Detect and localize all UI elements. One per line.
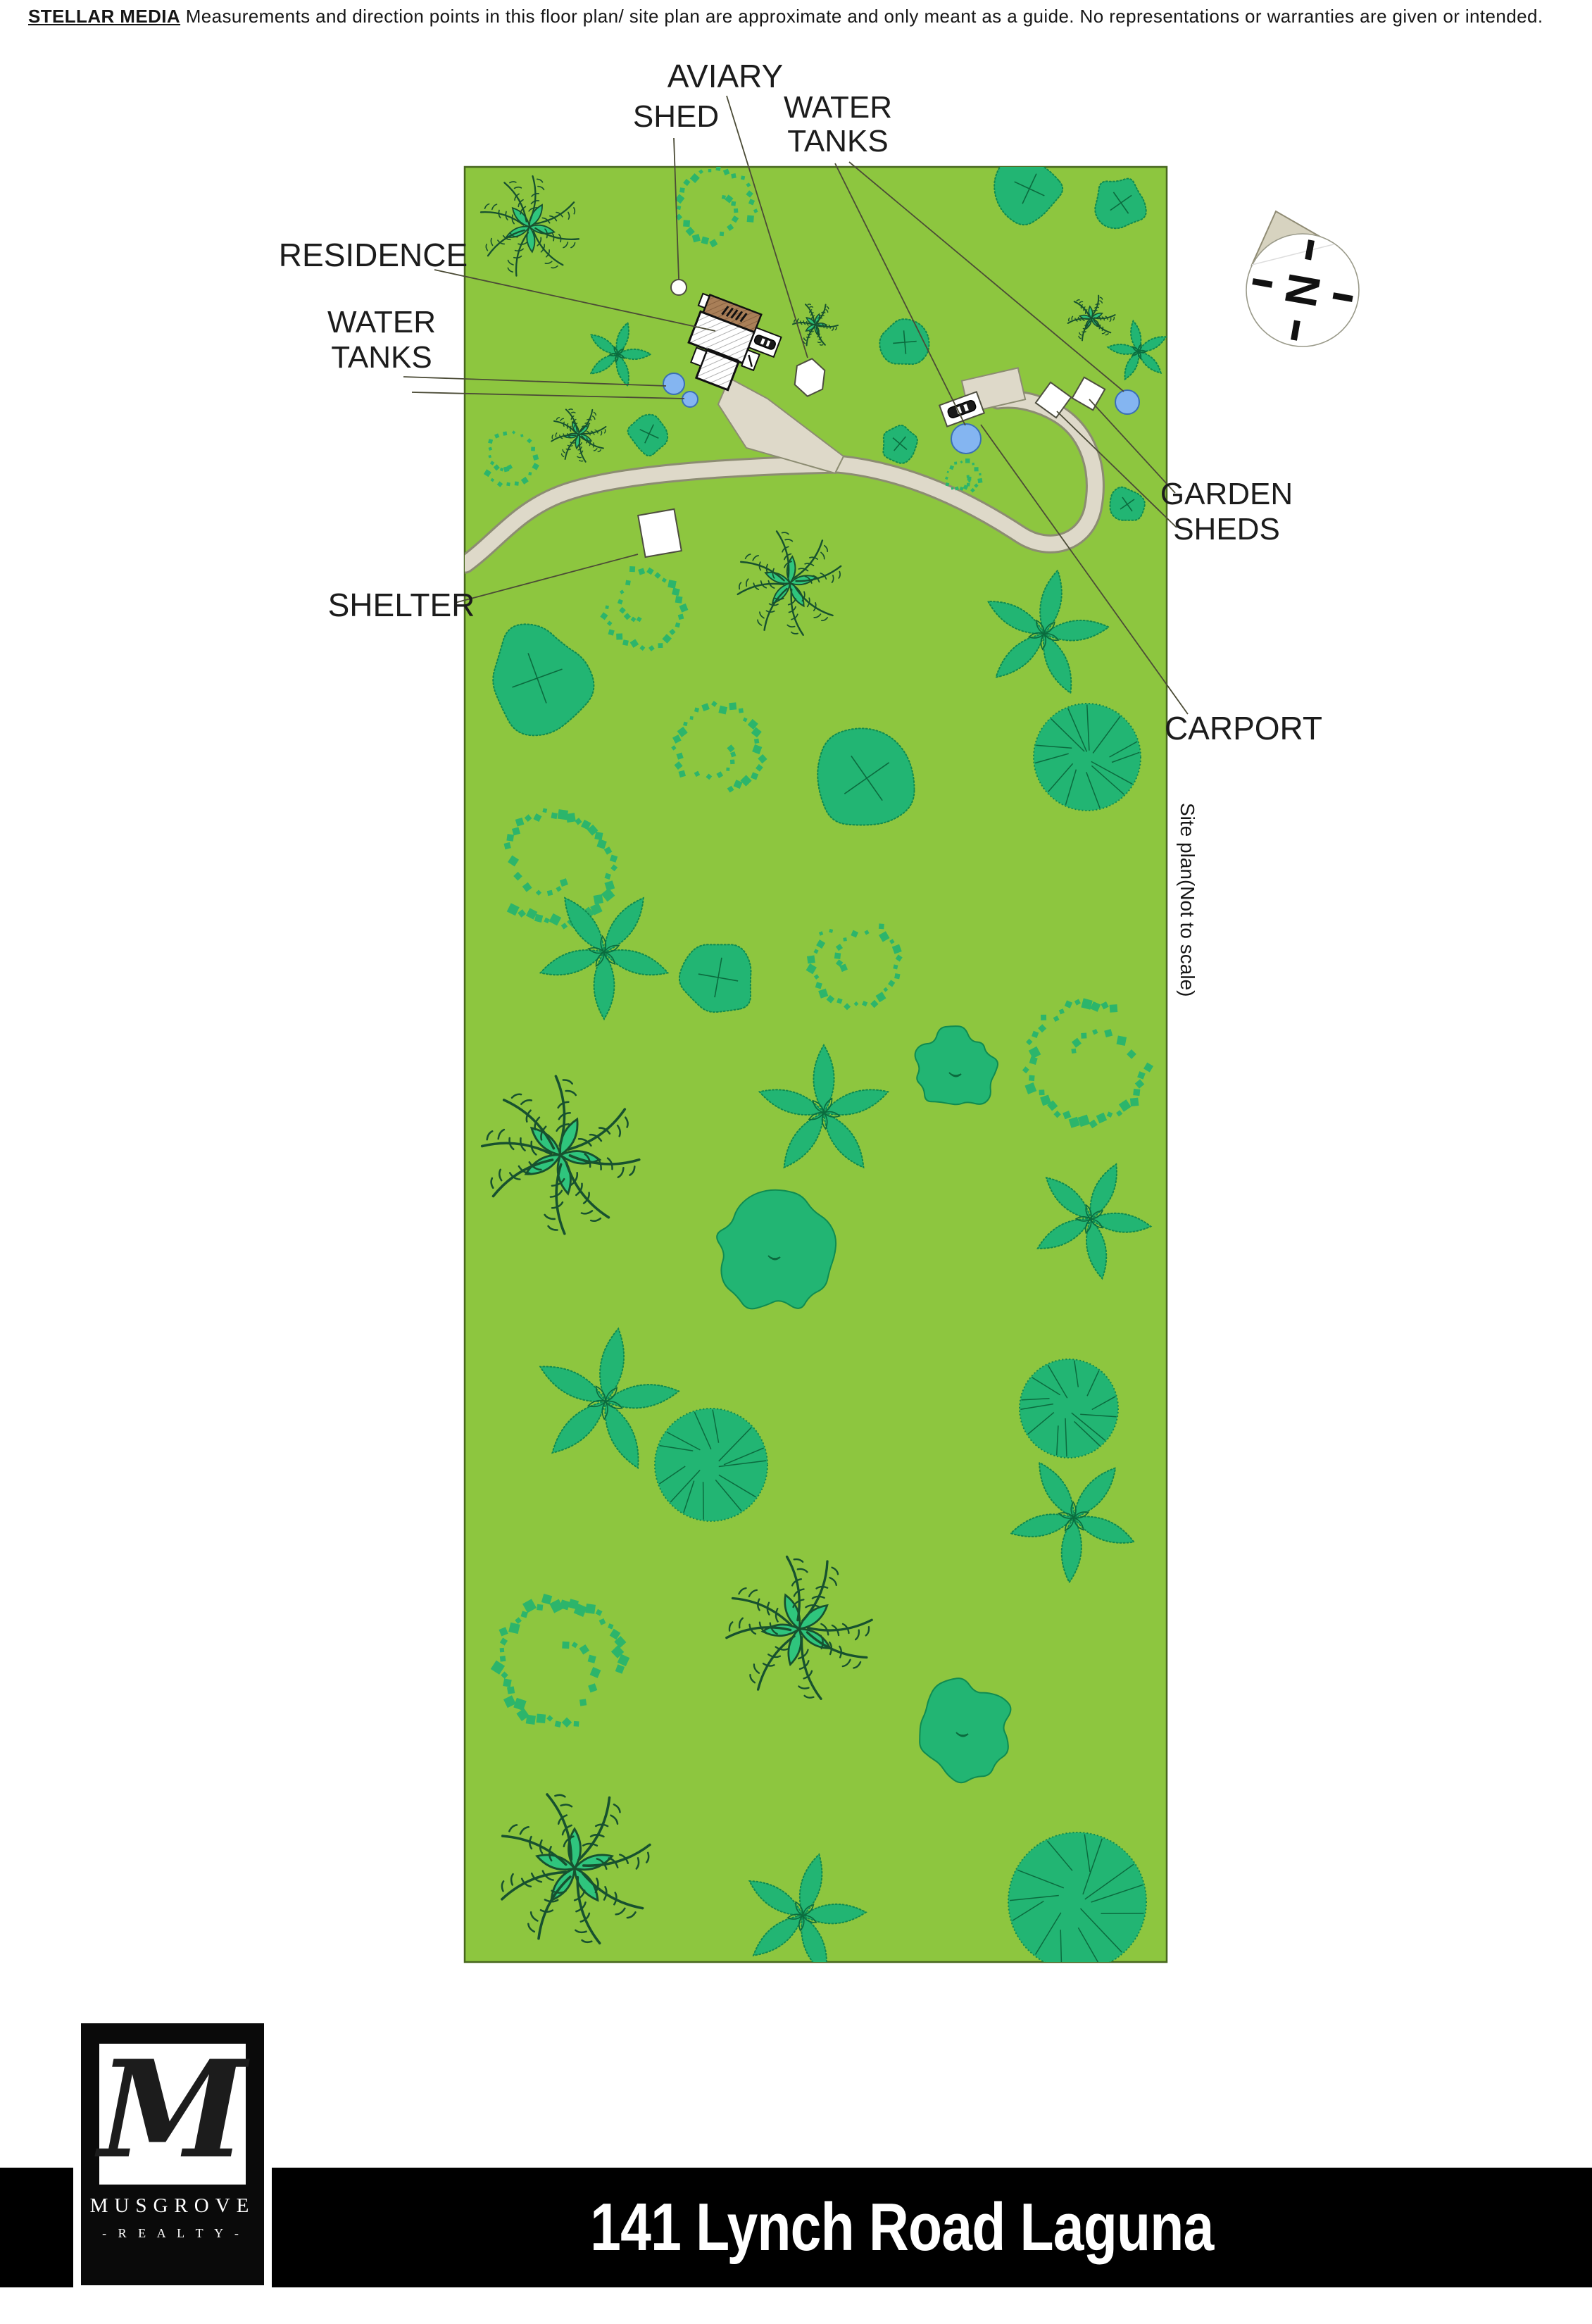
water-tank	[682, 392, 698, 407]
property-address-title: 141 Lynch Road Laguna	[590, 2189, 1213, 2266]
site-plan-svg: RESIDENCEWATERTANKSSHELTERSHEDAVIARYWATE…	[0, 0, 1592, 2324]
plant-pie	[655, 1408, 767, 1521]
water-tank	[663, 373, 684, 394]
plant-pie	[1034, 704, 1141, 811]
shelter-structure	[638, 509, 682, 557]
map-label-shed: SHED	[633, 99, 719, 134]
agency-monogram-square: M	[99, 2044, 246, 2185]
map-label-water-tanks-west: WATERTANKS	[327, 305, 436, 375]
water-tank	[951, 424, 981, 454]
map-label-aviary: AVIARY	[667, 58, 783, 94]
agency-tagline: - R E A L T Y -	[81, 2226, 264, 2241]
map-label-residence: RESIDENCE	[279, 237, 468, 273]
compass: N	[1244, 211, 1362, 349]
page: STELLAR MEDIA Measurements and direction…	[0, 0, 1592, 2324]
agency-name: MUSGROVE	[81, 2194, 264, 2218]
shed-structure	[671, 280, 687, 295]
map-label-garden-sheds: GARDENSHEDS	[1160, 477, 1293, 546]
map-label-carport: CARPORT	[1165, 710, 1322, 746]
agency-logo-box: M MUSGROVE - R E A L T Y -	[81, 2023, 264, 2285]
agency-logo: M MUSGROVE - R E A L T Y -	[73, 2016, 272, 2293]
site-plan-note: Site plan(Not to scale)	[1176, 803, 1198, 997]
plant-pie	[1020, 1359, 1118, 1458]
map-label-water-tanks-north: WATERTANKS	[784, 90, 892, 158]
map-label-shelter: SHELTER	[328, 587, 475, 623]
plant-pie	[1008, 1832, 1146, 1970]
agency-monogram: M	[99, 2043, 246, 2177]
footer-title-wrap: 141 Lynch Road Laguna	[211, 2168, 1592, 2287]
water-tank	[1115, 390, 1139, 414]
